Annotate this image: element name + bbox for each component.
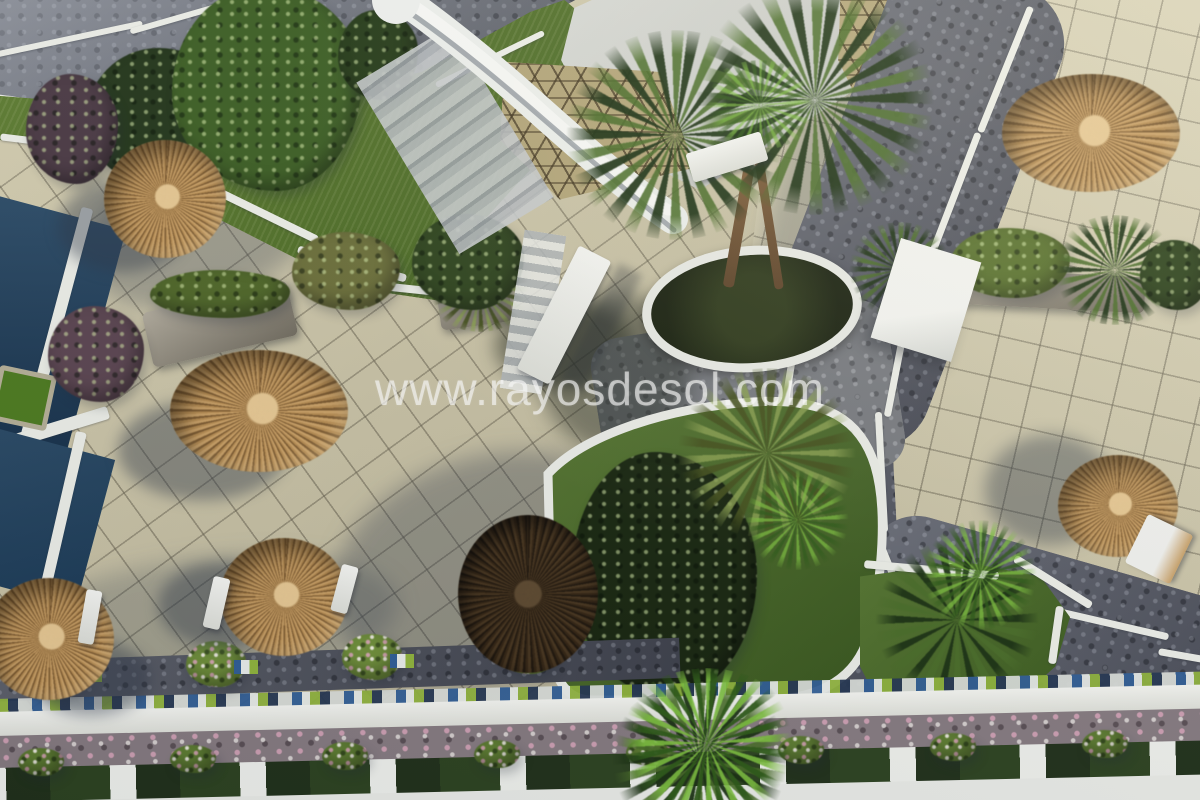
hedge-shrub (322, 742, 368, 770)
straw-parasol (220, 538, 348, 656)
planter-plants (150, 270, 290, 318)
straw-parasol (104, 140, 226, 258)
hedge-shrub (170, 745, 216, 773)
straw-parasol (1002, 74, 1180, 192)
watermark-text: www.rayosdesol.com (0, 362, 1200, 416)
hedge-shrub (1082, 730, 1128, 758)
purple-shrub (26, 74, 118, 184)
shaded-parasol (458, 515, 598, 673)
hedge-shrub (474, 740, 520, 768)
mosaic-planter-box (234, 660, 258, 674)
hedge-shrub (18, 748, 64, 776)
hedge-shrub (930, 733, 976, 761)
fan-palm-light (920, 520, 1040, 630)
aerial-resort-render: www.rayosdesol.com (0, 0, 1200, 800)
mosaic-planter-box (390, 654, 414, 668)
lawn-palmetto-light (742, 470, 852, 570)
